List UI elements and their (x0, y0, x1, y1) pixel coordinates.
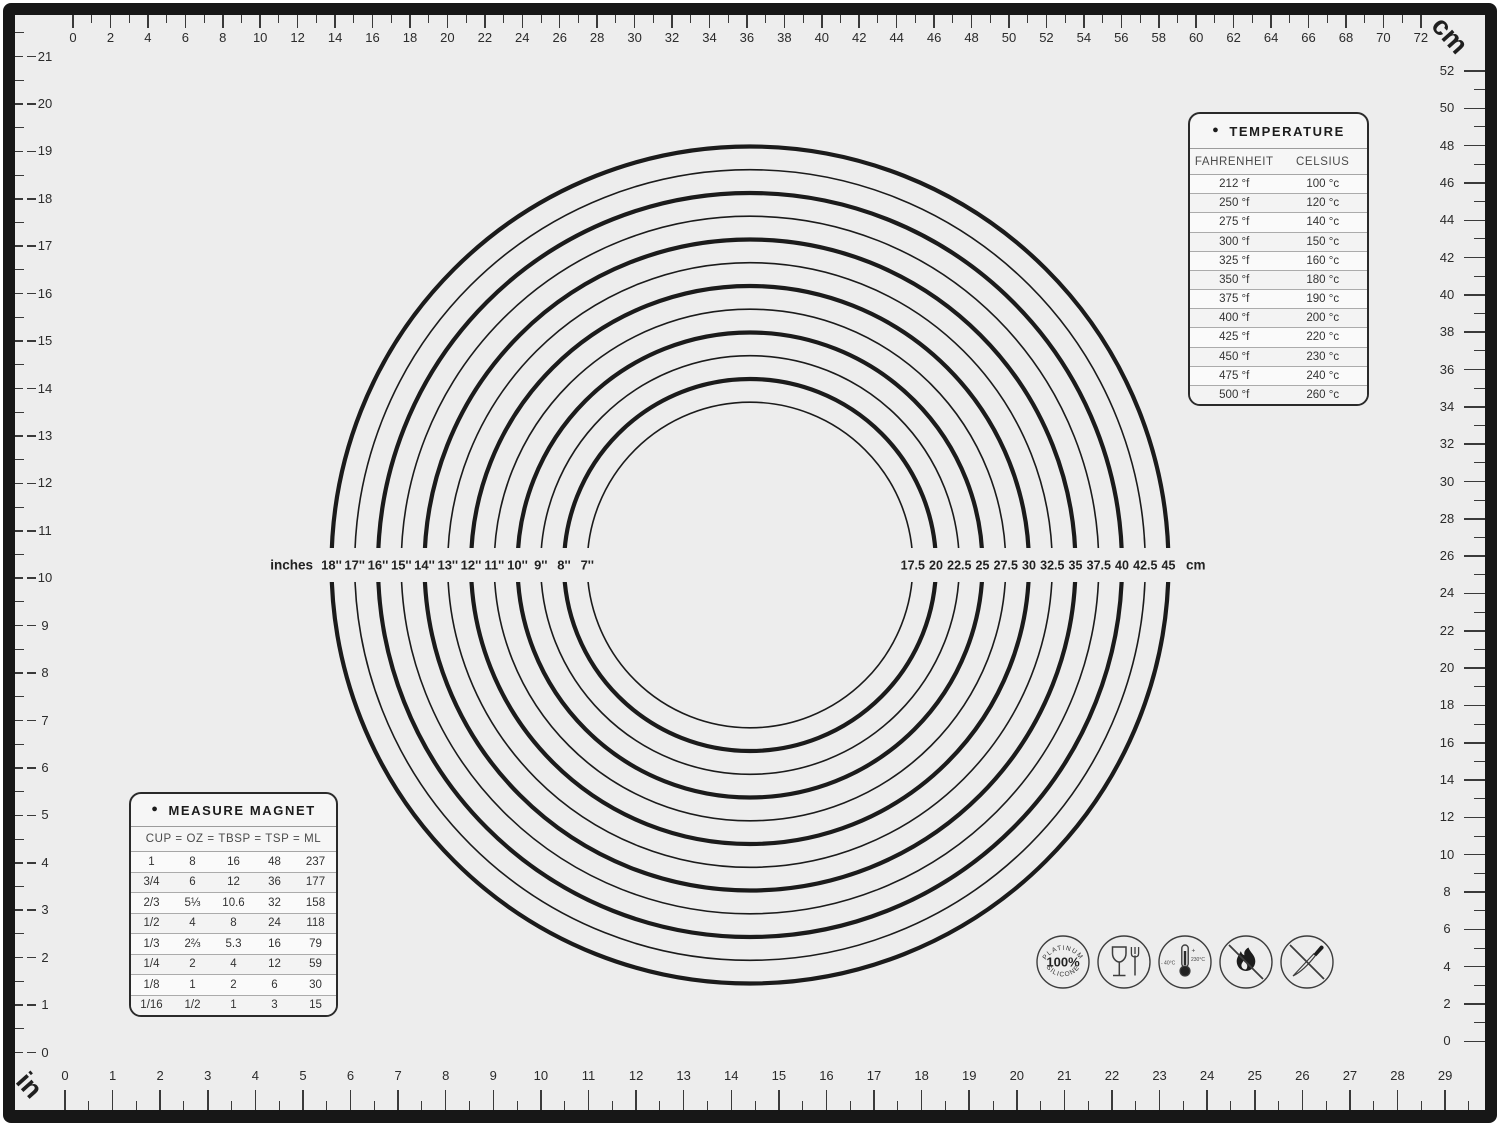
ruler-tick-minor (15, 222, 24, 223)
ruler-tick-major (826, 1090, 828, 1110)
ruler-label: 26 (1288, 1068, 1316, 1083)
ruler-dash (1464, 443, 1485, 445)
ruler-tick-major (147, 15, 149, 28)
ruler-tick-minor (615, 15, 616, 23)
ruler-label: 12 (33, 475, 57, 490)
table-cell: 6 (172, 876, 213, 888)
ruler-tick-major (15, 151, 23, 153)
table-cell: 5.3 (213, 938, 254, 950)
ring-label-cm: 37.5 (1087, 559, 1111, 573)
table-cell: 350 °f (1190, 274, 1279, 286)
ruler-label: 14 (1434, 772, 1460, 787)
ruler-tick-major (1233, 15, 1235, 28)
ruler-tick-minor (653, 15, 654, 23)
ruler-tick-minor (136, 1101, 137, 1110)
table-cell: 2⅔ (172, 938, 213, 950)
ruler-tick-minor (15, 791, 24, 792)
ruler-tick-minor (15, 933, 24, 934)
ruler-label: 2 (33, 950, 57, 965)
ruler-tick-major (15, 957, 23, 959)
table-row: 2/35⅓10.632158 (131, 893, 336, 914)
ring-label-inches: 9'' (534, 558, 547, 573)
ruler-tick-major (1420, 15, 1422, 28)
ruler-tick-major (259, 15, 261, 28)
table-cell: 6 (254, 979, 295, 991)
ruler-tick-major (1111, 1090, 1113, 1110)
ruler-label: 30 (621, 30, 649, 45)
table-cell: 230 °c (1279, 351, 1368, 363)
no-sharp-objects-icon (1279, 934, 1335, 990)
ruler-tick-minor (755, 1101, 756, 1110)
ruler-tick-minor (1474, 201, 1485, 202)
ruler-label: 66 (1295, 30, 1323, 45)
ruler-label: 21 (1050, 1068, 1078, 1083)
table-cell: 1 (131, 856, 172, 868)
table-row: 212 °f100 °c (1190, 175, 1367, 194)
ruler-tick-minor (1474, 724, 1485, 725)
ruler-label: 8 (432, 1068, 460, 1083)
table-cell: 325 °f (1190, 255, 1279, 267)
ruler-label: 9 (479, 1068, 507, 1083)
ruler-label: 50 (1434, 100, 1460, 115)
ruler-tick-minor (1278, 1101, 1279, 1110)
ring-label-inches: 7'' (581, 558, 594, 573)
ruler-tick-major (493, 1090, 495, 1110)
ruler-label: 3 (194, 1068, 222, 1083)
table-cell: 177 (295, 876, 336, 888)
table-cell: 12 (254, 958, 295, 970)
ruler-label: 10 (246, 30, 274, 45)
table-cell: 3/4 (131, 876, 172, 888)
ruler-tick-major (15, 483, 23, 485)
table-cell: 36 (254, 876, 295, 888)
ruler-label: 2 (146, 1068, 174, 1083)
ruler-tick-minor (503, 15, 504, 23)
ring-label-cm: 40 (1115, 559, 1129, 573)
ruler-label: 17 (860, 1068, 888, 1083)
table-cell: 1/16 (131, 999, 172, 1011)
ruler-tick-major (350, 1090, 352, 1110)
ruler-label: 28 (1384, 1068, 1412, 1083)
ruler-tick-minor (421, 1101, 422, 1110)
table-cell: 160 °c (1279, 255, 1368, 267)
table-row: 425 °f220 °c (1190, 328, 1367, 347)
ruler-tick-minor (803, 15, 804, 23)
ruler-tick-minor (1474, 388, 1485, 389)
ruler-dash (1464, 630, 1485, 632)
ruler-label: 6 (337, 1068, 365, 1083)
ruler-tick-minor (1474, 910, 1485, 911)
table-row: 250 °f120 °c (1190, 194, 1367, 213)
ruler-label: 20 (1003, 1068, 1031, 1083)
ruler-tick-minor (1474, 500, 1485, 501)
table-cell: 425 °f (1190, 331, 1279, 343)
ruler-tick-major (1308, 15, 1310, 28)
temperature-title-text: TEMPERATURE (1229, 124, 1345, 139)
ruler-label: 19 (955, 1068, 983, 1083)
ruler-label: 29 (1431, 1068, 1459, 1083)
ruler-label: 8 (209, 30, 237, 45)
ruler-tick-major (1064, 1090, 1066, 1110)
ruler-tick-major (1206, 1090, 1208, 1110)
ruler-tick-major (1046, 15, 1048, 28)
ruler-tick-minor (993, 1101, 994, 1110)
table-row: 1/24824118 (131, 914, 336, 935)
ruler-tick-minor (15, 32, 24, 33)
ruler-label: 32 (1434, 436, 1460, 451)
ruler-tick-minor (952, 15, 953, 23)
ruler-tick-minor (1327, 15, 1328, 23)
baking-mat: 18''4517''42.516''4015''37.514''3513''32… (0, 0, 1500, 1126)
ruler-tick-major (222, 15, 224, 28)
ring-label-cm: 25 (976, 559, 990, 573)
ruler-tick-major (302, 1090, 304, 1110)
ruler-tick-minor (91, 15, 92, 23)
ruler-tick-minor (241, 15, 242, 23)
table-cell: 30 (295, 979, 336, 991)
platinum-silicone-icon: PLATINUM 100% SILICONE (1035, 934, 1091, 990)
ruler-tick-minor (278, 15, 279, 23)
ruler-tick-major (1083, 15, 1085, 28)
table-cell: 237 (295, 856, 336, 868)
ring-label-cm: 42.5 (1133, 559, 1157, 573)
table-cell: 400 °f (1190, 312, 1279, 324)
header-celsius: CELSIUS (1279, 156, 1368, 168)
ruler-tick-major (15, 672, 23, 674)
table-cell: 4 (172, 917, 213, 929)
ruler-label: 25 (1241, 1068, 1269, 1083)
ruler-dash (1464, 70, 1485, 72)
ring-label-inches: 18'' (321, 558, 342, 573)
ruler-tick-major (1444, 1090, 1446, 1110)
ruler-label: 18 (396, 30, 424, 45)
ruler-label: 10 (1434, 847, 1460, 862)
ruler-tick-minor (15, 744, 24, 745)
ruler-tick-minor (1088, 1101, 1089, 1110)
table-cell: 118 (295, 917, 336, 929)
table-cell: 220 °c (1279, 331, 1368, 343)
table-cell: 2 (172, 958, 213, 970)
table-cell: 300 °f (1190, 236, 1279, 248)
ruler-label: 23 (1146, 1068, 1174, 1083)
ruler-tick-major (1302, 1090, 1304, 1110)
ruler-tick-major (15, 909, 23, 911)
ruler-label: 0 (51, 1068, 79, 1083)
ruler-tick-minor (1289, 15, 1290, 23)
measure-magnet-rows: 1816482373/4612361772/35⅓10.6321581/2482… (131, 852, 336, 1015)
ring-label-cm: 45 (1162, 559, 1176, 573)
ruler-label: 4 (241, 1068, 269, 1083)
ring-label-cm: 27.5 (994, 559, 1018, 573)
ruler-label: 0 (59, 30, 87, 45)
ruler-label: 7 (384, 1068, 412, 1083)
ruler-label: 20 (1434, 660, 1460, 675)
ring-label-inches: 17'' (344, 558, 365, 573)
ruler-label: 12 (622, 1068, 650, 1083)
ruler-label: 14 (321, 30, 349, 45)
table-cell: 1/2 (131, 917, 172, 929)
ruler-label: 1 (99, 1068, 127, 1083)
ruler-tick-major (1345, 15, 1347, 28)
ruler-tick-minor (517, 1101, 518, 1110)
table-cell: 450 °f (1190, 351, 1279, 363)
ring-label-inches: 11'' (484, 558, 504, 573)
table-row: 325 °f160 °c (1190, 252, 1367, 271)
ruler-tick-minor (1474, 537, 1485, 538)
ruler-label: 16 (1434, 735, 1460, 750)
ruler-label: 36 (733, 30, 761, 45)
ruler-tick-minor (612, 1101, 613, 1110)
ruler-tick-major (159, 1090, 161, 1110)
ruler-label: 5 (33, 807, 57, 822)
ruler-label: 12 (1434, 809, 1460, 824)
ruler-label: 3 (33, 902, 57, 917)
table-cell: 120 °c (1279, 197, 1368, 209)
ruler-tick-major (731, 1090, 733, 1110)
ruler-label: 15 (33, 333, 57, 348)
ruler-label: 16 (359, 30, 387, 45)
ring-label-inches: 12'' (461, 558, 482, 573)
ruler-dash (1464, 518, 1485, 520)
ruler-label: 19 (33, 143, 57, 158)
ruler-tick-minor (326, 1101, 327, 1110)
ring-label-cm: 17.5 (901, 559, 925, 573)
ruler-label: 8 (1434, 884, 1460, 899)
ruler-tick-major (1158, 15, 1160, 28)
ruler-tick-major (921, 1090, 923, 1110)
ruler-label: 26 (1434, 548, 1460, 563)
ruler-dash (1464, 929, 1485, 931)
table-cell: 15 (295, 999, 336, 1011)
ruler-label: 56 (1107, 30, 1135, 45)
ruler-tick-minor (690, 15, 691, 23)
ruler-tick-minor (564, 1101, 565, 1110)
ruler-label: 42 (845, 30, 873, 45)
ruler-tick-minor (945, 1101, 946, 1110)
table-cell: 48 (254, 856, 295, 868)
ruler-tick-major (15, 767, 23, 769)
plus-sign-text: + (1192, 948, 1196, 955)
table-row: 450 °f230 °c (1190, 348, 1367, 367)
ruler-tick-minor (88, 1101, 89, 1110)
ruler-tick-minor (1474, 612, 1485, 613)
ruler-tick-major (64, 1090, 66, 1110)
ring-label-inches: 14'' (414, 558, 435, 573)
ruler-tick-minor (541, 15, 542, 23)
table-row: 300 °f150 °c (1190, 233, 1367, 252)
table-cell: 8 (172, 856, 213, 868)
table-cell: 190 °c (1279, 293, 1368, 305)
ruler-label: 36 (1434, 362, 1460, 377)
ruler-dash (1464, 369, 1485, 371)
ruler-label: 28 (583, 30, 611, 45)
table-cell: 1/3 (131, 938, 172, 950)
ruler-tick-minor (391, 15, 392, 23)
ruler-tick-major (1270, 15, 1272, 28)
table-row: 1/161/21315 (131, 996, 336, 1016)
ruler-label: 24 (1434, 585, 1460, 600)
ruler-tick-minor (15, 459, 24, 460)
ruler-tick-minor (15, 80, 24, 81)
ruler-tick-minor (279, 1101, 280, 1110)
measure-magnet-title-text: MEASURE MAGNET (168, 803, 315, 818)
table-cell: 5⅓ (172, 897, 213, 909)
ruler-label: 12 (284, 30, 312, 45)
ruler-tick-major (15, 340, 23, 342)
ruler-tick-major (1008, 15, 1010, 28)
ruler-label: 20 (433, 30, 461, 45)
ruler-tick-minor (1474, 164, 1485, 165)
ruler-tick-major (255, 1090, 257, 1110)
ruler-tick-minor (15, 269, 24, 270)
temperature-table: ● TEMPERATURE FAHRENHEIT CELSIUS 212 °f1… (1188, 112, 1369, 406)
table-row: 1/4241259 (131, 955, 336, 976)
ruler-tick-major (409, 15, 411, 28)
table-cell: 240 °c (1279, 370, 1368, 382)
ruler-label: 18 (908, 1068, 936, 1083)
ruler-dash (1464, 817, 1485, 819)
ruler-tick-minor (1474, 761, 1485, 762)
ruler-tick-major (1254, 1090, 1256, 1110)
table-cell: 260 °c (1279, 389, 1368, 401)
ruler-tick-major (15, 1052, 23, 1054)
ruler-label: 68 (1332, 30, 1360, 45)
ruler-tick-minor (1474, 686, 1485, 687)
ruler-tick-major (15, 1004, 23, 1006)
ruler-tick-minor (1102, 15, 1103, 23)
ruler-tick-major (372, 15, 374, 28)
ruler-tick-minor (659, 1101, 660, 1110)
ruler-tick-minor (1474, 89, 1485, 90)
measure-magnet-title: ● MEASURE MAGNET (131, 794, 336, 827)
table-cell: 375 °f (1190, 293, 1279, 305)
ruler-dash (1464, 145, 1485, 147)
ruler-tick-minor (1474, 350, 1485, 351)
ruler-label: 6 (33, 760, 57, 775)
ruler-dash (1464, 481, 1485, 483)
ruler-tick-major (971, 15, 973, 28)
ruler-tick-major (15, 388, 23, 390)
ruler-tick-minor (1474, 836, 1485, 837)
ruler-tick-major (1349, 1090, 1351, 1110)
ruler-tick-major (72, 15, 74, 28)
ruler-tick-minor (1135, 1101, 1136, 1110)
ruler-label: 54 (1070, 30, 1098, 45)
ruler-tick-major (522, 15, 524, 28)
ruler-label: 9 (33, 618, 57, 633)
temperature-range-icon: - 40°C + 230°C (1157, 934, 1213, 990)
ruler-tick-major (15, 625, 23, 627)
table-cell: 16 (213, 856, 254, 868)
ruler-tick-major (484, 15, 486, 28)
ruler-label: 11 (574, 1068, 602, 1083)
ruler-dash (1464, 705, 1485, 707)
ruler-tick-major (671, 15, 673, 28)
min-temp-text: - 40°C (1161, 961, 1176, 967)
ruler-label: 42 (1434, 250, 1460, 265)
ruler-tick-minor (877, 15, 878, 23)
ruler-label: 40 (1434, 287, 1460, 302)
ruler-tick-major (821, 15, 823, 28)
ruler-tick-minor (15, 364, 24, 365)
measure-magnet-table: ● MEASURE MAGNET CUP = OZ = TBSP = TSP =… (129, 792, 338, 1017)
ruler-tick-minor (15, 507, 24, 508)
ruler-tick-minor (231, 1101, 232, 1110)
ruler-tick-minor (1474, 238, 1485, 239)
ruler-label: 44 (1434, 212, 1460, 227)
ruler-tick-minor (469, 1101, 470, 1110)
ruler-dash (1464, 966, 1485, 968)
table-cell: 79 (295, 938, 336, 950)
ruler-dash (1464, 779, 1485, 781)
ruler-tick-minor (990, 15, 991, 23)
ruler-tick-minor (1252, 15, 1253, 23)
ruler-label: 34 (695, 30, 723, 45)
table-cell: 3 (254, 999, 295, 1011)
ruler-label: 24 (508, 30, 536, 45)
ruler-label: 2 (96, 30, 124, 45)
ruler-tick-major (15, 103, 23, 105)
ruler-label: 26 (546, 30, 574, 45)
ruler-tick-major (635, 1090, 637, 1110)
ring-unit-cm: cm (1186, 558, 1206, 573)
table-cell: 1/2 (172, 999, 213, 1011)
ruler-tick-minor (15, 886, 24, 887)
ruler-tick-major (15, 530, 23, 532)
table-cell: 275 °f (1190, 216, 1279, 228)
table-cell: 1/8 (131, 979, 172, 991)
ring-label-cm: 20 (929, 559, 943, 573)
ruler-tick-minor (897, 1101, 898, 1110)
ruler-tick-minor (353, 15, 354, 23)
header-cup-oz-tbsp-tsp-ml: CUP = OZ = TBSP = TSP = ML (131, 833, 336, 845)
table-row: 3/461236177 (131, 873, 336, 894)
table-cell: 24 (254, 917, 295, 929)
ruler-dash (1464, 667, 1485, 669)
ruler-label: 38 (1434, 324, 1460, 339)
food-safe-icon (1096, 934, 1152, 990)
ruler-tick-minor (1474, 798, 1485, 799)
ruler-tick-minor (1474, 462, 1485, 463)
table-cell: 1 (213, 999, 254, 1011)
ruler-tick-major (634, 15, 636, 28)
ruler-tick-minor (15, 981, 24, 982)
ruler-tick-major (784, 15, 786, 28)
ruler-label: 0 (1434, 1033, 1460, 1048)
ruler-tick-major (683, 1090, 685, 1110)
ruler-label: 11 (33, 523, 57, 538)
ruler-tick-minor (1474, 985, 1485, 986)
ruler-label: 52 (1032, 30, 1060, 45)
ruler-dash (1464, 891, 1485, 893)
ruler-tick-major (1159, 1090, 1161, 1110)
ruler-dash (1464, 220, 1485, 222)
ruler-tick-minor (1027, 15, 1028, 23)
ruler-dash (1464, 294, 1485, 296)
table-cell: 500 °f (1190, 389, 1279, 401)
ruler-label: 17 (33, 238, 57, 253)
table-cell: 250 °f (1190, 197, 1279, 209)
ruler-dash (1464, 854, 1485, 856)
ruler-label: 20 (33, 96, 57, 111)
table-cell: 4 (213, 958, 254, 970)
table-cell: 475 °f (1190, 370, 1279, 382)
ruler-tick-minor (1402, 15, 1403, 23)
ruler-label: 32 (658, 30, 686, 45)
ruler-tick-minor (15, 601, 24, 602)
ruler-tick-major (207, 1090, 209, 1110)
ruler-tick-major (778, 1090, 780, 1110)
